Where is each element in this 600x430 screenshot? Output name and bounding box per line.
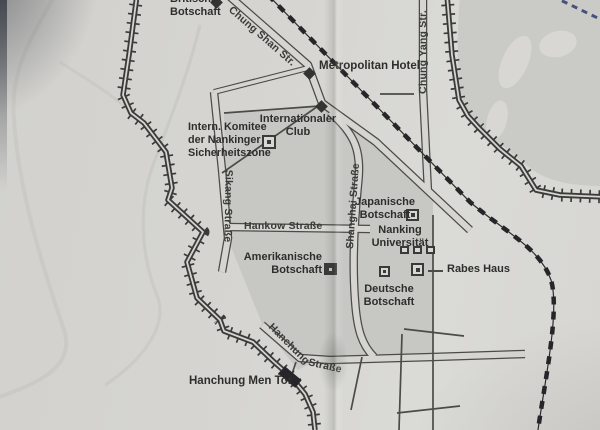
rabe-house-label: Rabes Haus — [447, 263, 510, 276]
metropolitan-hotel-label: Metropolitan Hotel — [319, 60, 420, 73]
british-embassy-label: Britische Botschaft — [170, 0, 221, 19]
map-canvas — [0, 0, 600, 430]
american-embassy-label: Amerikanische Botschaft — [230, 251, 322, 277]
sikang-street-label: Sikang Straße — [221, 170, 234, 243]
rabe-house-pointer-line — [428, 270, 443, 272]
german-embassy-label: Deutsche Botschaft — [344, 283, 434, 309]
zone-building-marker — [379, 266, 390, 277]
terrain-area — [458, 0, 600, 186]
rabe-house-marker — [411, 263, 424, 276]
map-page-photo: Britische Botschaft Metropolitan Hotel I… — [0, 0, 600, 430]
nanking-university-label: Nanking Universität — [355, 224, 445, 250]
chung-yang-street-label: Chung Yang Str. — [417, 10, 429, 94]
hanchung-gate-label: Hanchung Men Tor — [189, 375, 292, 388]
american-embassy-marker — [324, 263, 337, 275]
hankow-street-label: Hankow Straße — [244, 220, 322, 232]
safety-zone-committee-label: Intern. Komitee der Nankinger Sicherheit… — [188, 121, 271, 159]
